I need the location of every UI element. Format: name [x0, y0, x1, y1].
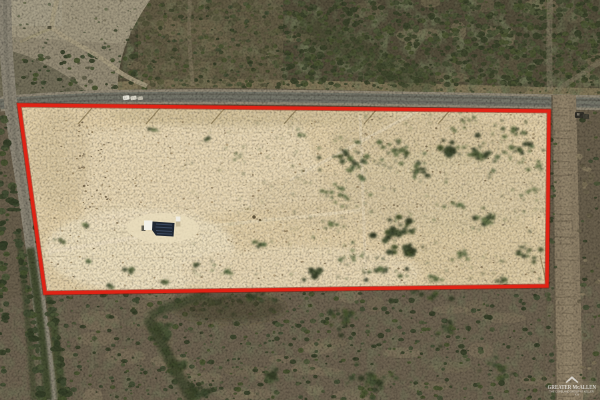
- svg-text:KW: KW: [575, 393, 580, 397]
- svg-text:THE COPELAND GROUP AT KELLER: THE COPELAND GROUP AT KELLER: [549, 390, 593, 394]
